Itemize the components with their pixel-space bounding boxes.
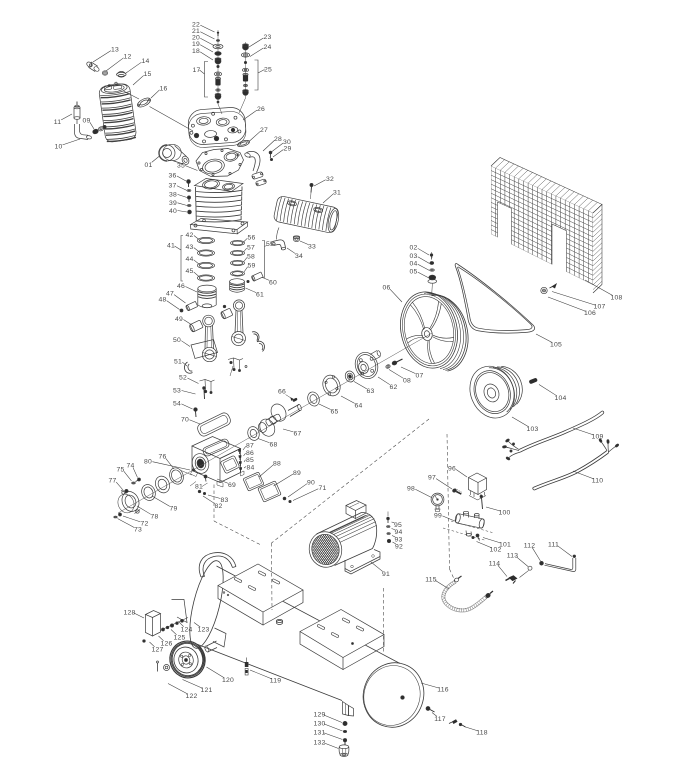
svg-text:90: 90 bbox=[307, 480, 315, 487]
svg-text:112: 112 bbox=[524, 543, 535, 550]
svg-text:77: 77 bbox=[109, 478, 117, 485]
svg-text:57: 57 bbox=[247, 245, 255, 252]
svg-text:49: 49 bbox=[175, 316, 183, 323]
svg-text:80: 80 bbox=[144, 459, 152, 466]
svg-text:32: 32 bbox=[326, 176, 334, 183]
svg-text:45: 45 bbox=[186, 268, 194, 275]
svg-text:15: 15 bbox=[144, 71, 152, 78]
svg-text:12: 12 bbox=[124, 54, 132, 61]
svg-text:103: 103 bbox=[527, 426, 539, 433]
svg-text:100: 100 bbox=[499, 510, 511, 517]
svg-text:18: 18 bbox=[192, 48, 200, 55]
svg-text:24: 24 bbox=[264, 44, 272, 51]
svg-text:81: 81 bbox=[195, 484, 203, 491]
svg-text:91: 91 bbox=[382, 571, 390, 578]
svg-text:29: 29 bbox=[284, 146, 292, 153]
svg-text:129: 129 bbox=[314, 712, 326, 719]
svg-text:44: 44 bbox=[186, 256, 194, 263]
svg-text:88: 88 bbox=[273, 461, 281, 468]
svg-text:82: 82 bbox=[215, 503, 223, 510]
svg-text:04: 04 bbox=[410, 261, 418, 268]
svg-text:132: 132 bbox=[314, 740, 326, 747]
svg-text:84: 84 bbox=[247, 465, 255, 472]
svg-text:59: 59 bbox=[248, 263, 256, 270]
svg-text:17: 17 bbox=[193, 67, 201, 74]
svg-text:05: 05 bbox=[410, 269, 418, 276]
svg-text:93: 93 bbox=[395, 537, 403, 544]
svg-text:07: 07 bbox=[416, 373, 424, 380]
svg-text:104: 104 bbox=[555, 395, 567, 402]
svg-text:16: 16 bbox=[160, 86, 168, 93]
svg-text:123: 123 bbox=[198, 627, 210, 634]
svg-text:08: 08 bbox=[403, 378, 411, 385]
svg-text:63: 63 bbox=[367, 388, 375, 395]
svg-text:60: 60 bbox=[269, 280, 277, 287]
svg-text:66: 66 bbox=[278, 389, 286, 396]
svg-text:127: 127 bbox=[152, 647, 164, 654]
svg-text:13: 13 bbox=[111, 47, 119, 54]
svg-text:42: 42 bbox=[186, 232, 194, 239]
svg-text:19: 19 bbox=[192, 41, 200, 48]
svg-text:113: 113 bbox=[507, 553, 518, 560]
svg-text:118: 118 bbox=[476, 730, 487, 737]
svg-text:26: 26 bbox=[257, 106, 265, 113]
svg-text:92: 92 bbox=[395, 544, 403, 551]
svg-text:68: 68 bbox=[270, 442, 278, 449]
svg-text:11: 11 bbox=[54, 119, 61, 126]
svg-text:62: 62 bbox=[390, 384, 398, 391]
svg-text:09: 09 bbox=[83, 118, 91, 125]
svg-text:116: 116 bbox=[437, 687, 448, 694]
svg-text:54: 54 bbox=[173, 401, 181, 408]
svg-text:94: 94 bbox=[395, 529, 403, 536]
svg-text:61: 61 bbox=[256, 292, 264, 299]
svg-text:75: 75 bbox=[117, 467, 125, 474]
svg-text:79: 79 bbox=[170, 506, 178, 513]
svg-text:41: 41 bbox=[167, 243, 175, 250]
svg-text:85: 85 bbox=[246, 457, 254, 464]
svg-text:106: 106 bbox=[584, 310, 596, 317]
svg-text:36: 36 bbox=[169, 173, 177, 180]
svg-text:87: 87 bbox=[246, 443, 254, 450]
svg-text:125: 125 bbox=[174, 635, 186, 642]
svg-text:06: 06 bbox=[383, 285, 391, 292]
svg-text:131: 131 bbox=[314, 730, 326, 737]
svg-text:117: 117 bbox=[434, 716, 445, 723]
svg-text:58: 58 bbox=[247, 254, 255, 261]
svg-text:65: 65 bbox=[331, 409, 339, 416]
svg-text:70: 70 bbox=[181, 417, 189, 424]
svg-text:23: 23 bbox=[264, 34, 272, 41]
svg-text:99: 99 bbox=[434, 513, 442, 520]
svg-text:52: 52 bbox=[179, 375, 187, 382]
svg-text:89: 89 bbox=[293, 470, 301, 477]
svg-text:115: 115 bbox=[425, 577, 436, 584]
svg-text:03: 03 bbox=[410, 253, 418, 260]
svg-text:35: 35 bbox=[177, 163, 185, 170]
svg-text:38: 38 bbox=[169, 192, 177, 199]
svg-text:69: 69 bbox=[228, 482, 236, 489]
svg-text:111: 111 bbox=[548, 542, 559, 549]
svg-text:01: 01 bbox=[145, 162, 153, 169]
svg-text:64: 64 bbox=[355, 403, 363, 410]
svg-text:73: 73 bbox=[134, 527, 142, 534]
svg-text:55: 55 bbox=[266, 241, 274, 248]
svg-text:48: 48 bbox=[159, 297, 167, 304]
svg-text:43: 43 bbox=[186, 244, 194, 251]
svg-text:25: 25 bbox=[264, 67, 272, 74]
svg-text:47: 47 bbox=[166, 291, 174, 298]
svg-text:98: 98 bbox=[407, 486, 415, 493]
svg-text:97: 97 bbox=[428, 475, 436, 482]
svg-text:27: 27 bbox=[260, 127, 268, 134]
svg-text:02: 02 bbox=[410, 245, 418, 252]
svg-text:78: 78 bbox=[151, 514, 159, 521]
svg-text:40: 40 bbox=[169, 208, 177, 215]
svg-text:124: 124 bbox=[181, 627, 193, 634]
svg-text:10: 10 bbox=[55, 144, 63, 151]
svg-text:109: 109 bbox=[592, 434, 604, 441]
svg-text:96: 96 bbox=[448, 466, 456, 473]
svg-text:46: 46 bbox=[177, 283, 185, 290]
svg-text:95: 95 bbox=[394, 522, 402, 529]
svg-text:120: 120 bbox=[222, 677, 234, 684]
svg-text:33: 33 bbox=[308, 244, 316, 251]
svg-text:128: 128 bbox=[124, 610, 136, 617]
svg-text:37: 37 bbox=[169, 183, 177, 190]
svg-text:130: 130 bbox=[314, 721, 326, 728]
svg-text:67: 67 bbox=[294, 431, 302, 438]
svg-text:110: 110 bbox=[592, 478, 603, 485]
svg-text:53: 53 bbox=[173, 388, 181, 395]
svg-text:56: 56 bbox=[248, 235, 256, 242]
svg-text:50: 50 bbox=[173, 337, 181, 344]
svg-text:34: 34 bbox=[295, 253, 303, 260]
svg-text:51: 51 bbox=[174, 359, 182, 366]
svg-text:28: 28 bbox=[274, 136, 282, 143]
svg-text:31: 31 bbox=[333, 190, 341, 197]
svg-text:76: 76 bbox=[159, 454, 167, 461]
svg-text:14: 14 bbox=[142, 58, 150, 65]
svg-text:71: 71 bbox=[319, 485, 327, 492]
svg-text:39: 39 bbox=[169, 200, 177, 207]
svg-text:86: 86 bbox=[246, 450, 254, 457]
